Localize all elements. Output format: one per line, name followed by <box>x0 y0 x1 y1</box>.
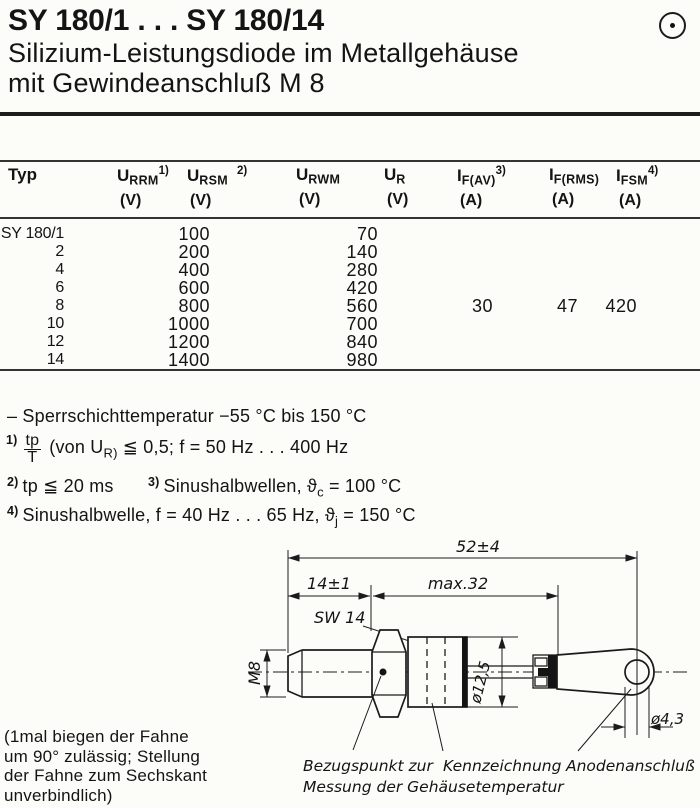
table-cell: 140 <box>346 243 378 261</box>
table-cell: 8 <box>55 297 64 315</box>
table-cell: 200 <box>178 243 210 261</box>
table-cell: 1200 <box>168 333 210 351</box>
table-cell: 980 <box>346 351 378 369</box>
bend-remark: (1mal biegen der Fahneum 90° zulässig; S… <box>4 727 207 805</box>
table-cell: 6 <box>55 279 64 297</box>
column-header: UR(V) <box>384 165 408 209</box>
table-cell: SY 180/1 <box>1 225 64 243</box>
table-cell: 4 <box>55 261 64 279</box>
table-top-rule <box>0 160 700 162</box>
table-row: 141400980 <box>0 351 700 369</box>
ratings-rows: SY 180/110070220014044002806600420880056… <box>0 225 700 369</box>
table-cell: 560 <box>346 297 378 315</box>
footnote-4: 4)Sinushalbwelle, f = 40 Hz . . . 65 Hz,… <box>7 505 416 529</box>
table-cell: 12 <box>47 333 64 351</box>
page-title: SY 180/1 . . . SY 180/14 <box>8 4 324 38</box>
column-header: Typ <box>8 165 37 185</box>
bend-remark-line: der Fahne zum Sechskant <box>4 766 207 786</box>
threaded-stud <box>288 650 374 697</box>
case-body <box>408 637 467 707</box>
dimension-m8: M8 <box>245 650 286 697</box>
table-cell: 840 <box>346 333 378 351</box>
crimp-sleeve <box>533 655 557 688</box>
bend-remark-line: um 90° zulässig; Stellung <box>4 747 207 767</box>
table-row: 101000700 <box>0 315 700 333</box>
dot <box>670 23 675 28</box>
table-cell: 10 <box>47 315 64 333</box>
datasheet-page: { "header": { "title": "SY 180/1 . . . S… <box>0 0 700 808</box>
dia43-label: ø4,3 <box>650 710 684 728</box>
table-row: 121200840 <box>0 333 700 351</box>
table-row: SY 180/110070 <box>0 225 700 243</box>
column-header: URRM1)(V) <box>117 165 169 210</box>
column-header: URWM(V) <box>296 165 340 209</box>
bend-remark-line: (1mal biegen der Fahne <box>4 727 207 747</box>
anode-flag <box>557 551 654 735</box>
table-cell: 420 <box>346 279 378 297</box>
table-cell: 700 <box>346 315 378 333</box>
m8-label: M8 <box>245 661 264 685</box>
table-cell: 100 <box>178 225 210 243</box>
table-cell: 420 <box>605 297 637 315</box>
label-anodenanschluss: Anodenanschluß <box>566 756 695 777</box>
case-temperature-reference-dot <box>380 669 387 676</box>
footnote-1-mark: 1) <box>6 433 18 447</box>
column-header: IF(RMS)(A) <box>549 165 599 209</box>
dimension-52: 52±4 <box>288 537 637 653</box>
column-header: URSM2)(V) <box>187 165 247 210</box>
dimension-max32-label: max.32 <box>428 574 488 593</box>
table-cell: 70 <box>357 225 378 243</box>
bend-remark-line: unverbindlich) <box>4 786 207 806</box>
table-cell: 1000 <box>168 315 210 333</box>
subtitle-line-2: mit Gewindeanschluß M 8 <box>8 68 325 99</box>
table-row: 6600420 <box>0 279 700 297</box>
table-row: 2200140 <box>0 243 700 261</box>
table-cell: 2 <box>55 243 64 261</box>
table-header-rule <box>0 217 700 219</box>
dimension-14-label: 14±1 <box>307 574 351 593</box>
column-header: IFSM4)(A) <box>616 165 658 210</box>
table-cell: 1400 <box>168 351 210 369</box>
header-divider <box>0 112 700 116</box>
note-junction-temperature: – Sperrschichttemperatur −55 °C bis 150 … <box>7 406 366 427</box>
table-cell: 400 <box>178 261 210 279</box>
footnote-1: 1) tp T (von UR) ≦ 0,5; f = 50 Hz . . . … <box>6 433 348 465</box>
sw14-label: SW 14 <box>314 608 365 627</box>
table-cell: 800 <box>178 297 210 315</box>
table-row: 88005603047420 <box>0 297 700 315</box>
subtitle-line-1: Silizium-Leistungsdiode im Metallgehäuse <box>8 38 519 69</box>
dimension-52-label: 52±4 <box>456 537 500 556</box>
footnote-1-text: (von UR) ≦ 0,5; f = 50 Hz . . . 400 Hz <box>49 437 348 461</box>
table-cell: 47 <box>557 297 578 315</box>
table-cell: 14 <box>47 351 64 369</box>
table-cell: 600 <box>178 279 210 297</box>
footnote-3: 3)Sinushalbwellen, ϑc = 100 °C <box>148 476 401 500</box>
circled-dot-icon <box>659 12 686 39</box>
table-cell: 280 <box>346 261 378 279</box>
dimension-dia43: ø4,3 <box>601 687 684 738</box>
footnote-2: 2)tp ≦ 20 ms <box>7 476 114 497</box>
fraction-tp-T: tp T <box>24 433 42 465</box>
label-kennzeichnung: Kennzeichnung <box>443 756 561 777</box>
table-row: 4400280 <box>0 261 700 279</box>
table-bottom-rule <box>0 369 700 371</box>
table-cell: 30 <box>472 297 493 315</box>
column-header: IF(AV)3)(A) <box>457 165 506 210</box>
hex-nut <box>372 630 406 717</box>
